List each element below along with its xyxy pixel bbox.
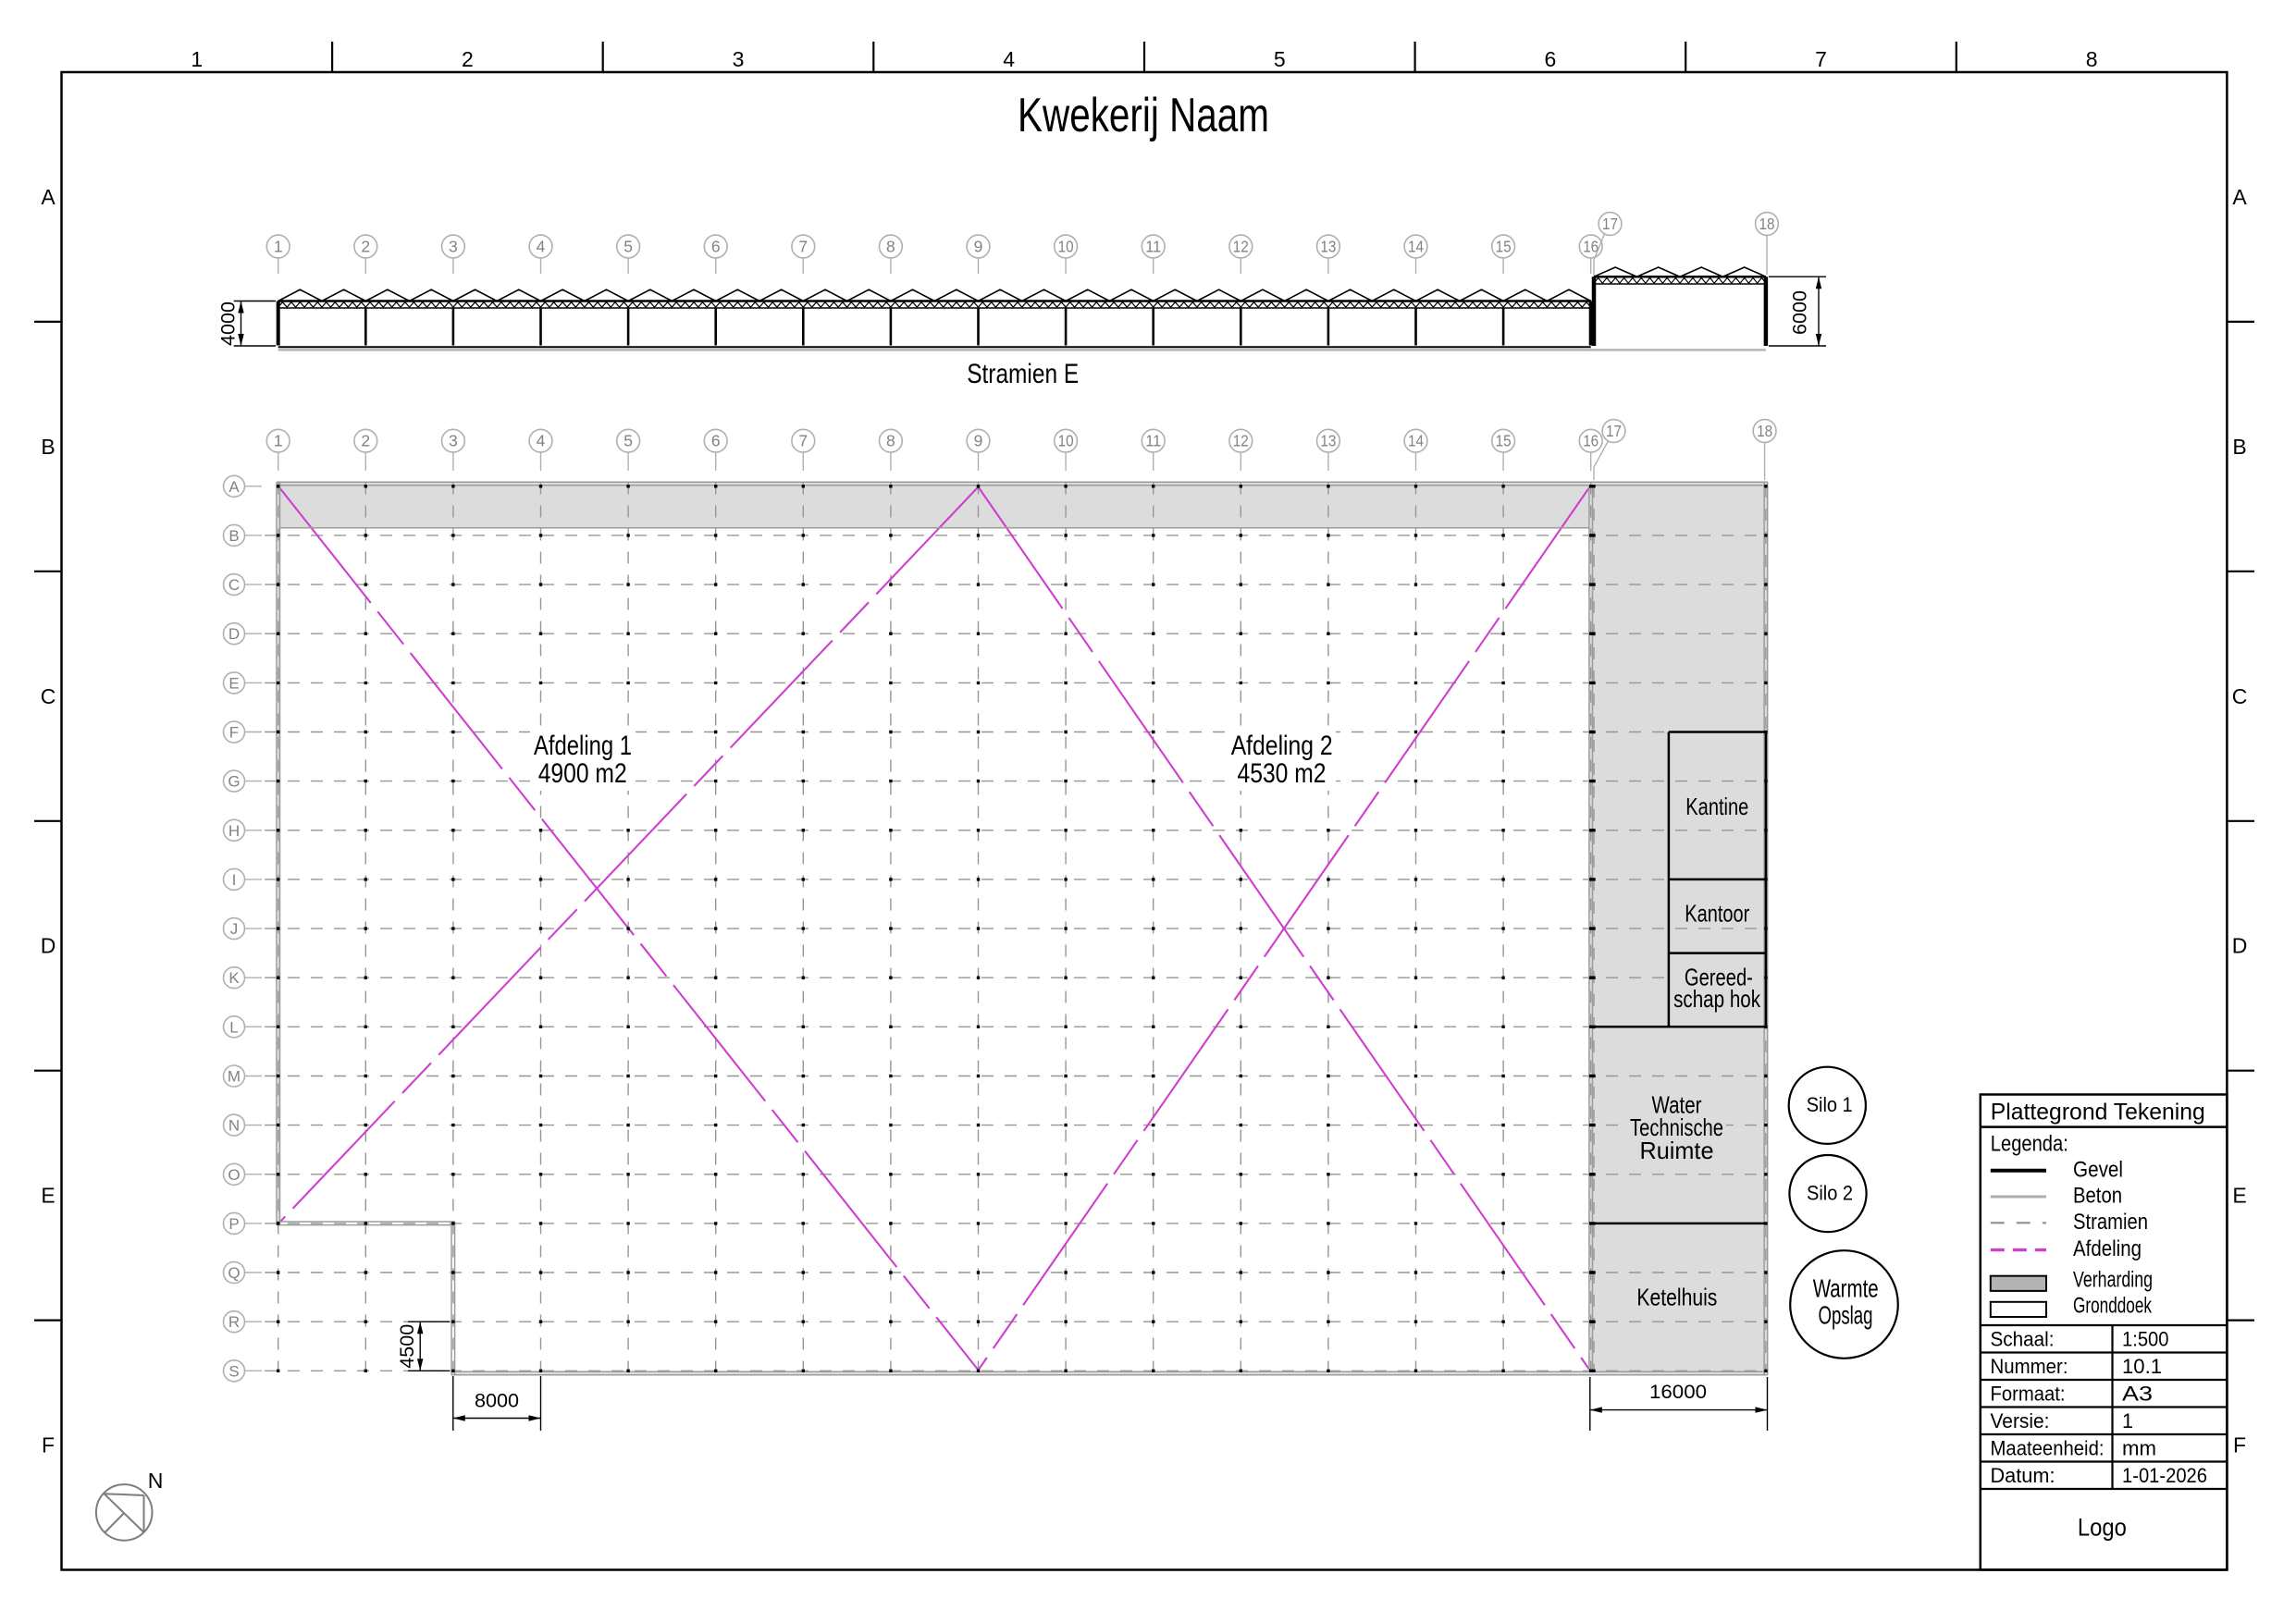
svg-text:4530 m2: 4530 m2 <box>1238 758 1327 789</box>
svg-text:Logo: Logo <box>2078 1514 2127 1542</box>
svg-text:3: 3 <box>733 47 745 71</box>
svg-text:E: E <box>2232 1184 2246 1208</box>
svg-text:Afdeling 1: Afdeling 1 <box>534 731 632 761</box>
svg-text:R: R <box>228 1313 240 1331</box>
svg-text:11: 11 <box>1145 238 1161 256</box>
svg-text:6: 6 <box>1545 47 1557 71</box>
svg-text:1: 1 <box>191 47 203 71</box>
svg-text:mm: mm <box>2122 1437 2156 1460</box>
svg-text:6000: 6000 <box>1789 290 1811 335</box>
svg-text:Stramien E: Stramien E <box>967 359 1079 389</box>
svg-text:Gronddoek: Gronddoek <box>2073 1294 2153 1319</box>
svg-text:3: 3 <box>449 432 458 450</box>
svg-text:I: I <box>232 871 237 889</box>
svg-text:4: 4 <box>1003 47 1015 71</box>
svg-text:3: 3 <box>449 238 458 256</box>
svg-text:9: 9 <box>974 432 983 450</box>
svg-text:N: N <box>148 1469 164 1493</box>
svg-text:Maateenheid:: Maateenheid: <box>1991 1437 2105 1460</box>
svg-text:schap hok: schap hok <box>1673 985 1761 1013</box>
svg-text:C: C <box>228 576 240 594</box>
svg-text:10: 10 <box>1058 432 1074 450</box>
svg-text:Kantoor: Kantoor <box>1685 900 1749 928</box>
svg-text:D: D <box>41 934 56 958</box>
svg-text:P: P <box>228 1215 239 1233</box>
svg-text:F: F <box>229 724 239 742</box>
svg-text:Beton: Beton <box>2073 1184 2122 1209</box>
svg-text:Silo 2: Silo 2 <box>1807 1182 1853 1205</box>
svg-text:6: 6 <box>711 432 721 450</box>
svg-text:15: 15 <box>1496 238 1512 256</box>
svg-text:O: O <box>228 1166 240 1184</box>
svg-text:Schaal:: Schaal: <box>1991 1328 2055 1351</box>
svg-text:B: B <box>41 435 55 459</box>
svg-text:Datum:: Datum: <box>1991 1464 2055 1487</box>
svg-text:K: K <box>228 969 240 987</box>
svg-text:B: B <box>2232 435 2246 459</box>
svg-text:A3: A3 <box>2122 1383 2153 1406</box>
svg-text:12: 12 <box>1233 432 1249 450</box>
svg-text:F: F <box>42 1433 55 1457</box>
svg-text:16000: 16000 <box>1649 1381 1707 1403</box>
svg-text:4500: 4500 <box>396 1324 418 1369</box>
svg-text:15: 15 <box>1496 432 1512 450</box>
svg-text:4000: 4000 <box>217 301 240 346</box>
svg-text:7: 7 <box>798 432 808 450</box>
svg-text:14: 14 <box>1408 432 1424 450</box>
svg-text:12: 12 <box>1233 238 1249 256</box>
svg-text:7: 7 <box>1815 47 1827 71</box>
svg-text:13: 13 <box>1320 238 1336 256</box>
svg-text:2: 2 <box>361 432 370 450</box>
svg-text:Stramien: Stramien <box>2073 1210 2148 1235</box>
svg-text:1: 1 <box>274 432 283 450</box>
svg-text:4: 4 <box>537 432 546 450</box>
svg-text:L: L <box>229 1018 238 1036</box>
svg-text:8: 8 <box>2086 47 2098 71</box>
svg-text:C: C <box>2232 684 2248 708</box>
svg-text:S: S <box>228 1362 239 1380</box>
svg-text:2: 2 <box>361 238 370 256</box>
svg-text:Formaat:: Formaat: <box>1991 1383 2066 1406</box>
svg-text:7: 7 <box>798 238 808 256</box>
svg-text:2: 2 <box>462 47 474 71</box>
svg-text:4: 4 <box>537 238 546 256</box>
svg-text:1:500: 1:500 <box>2122 1328 2169 1351</box>
svg-text:9: 9 <box>974 238 983 256</box>
svg-text:Legenda:: Legenda: <box>1991 1132 2068 1157</box>
svg-text:17: 17 <box>1602 215 1618 233</box>
svg-text:Gevel: Gevel <box>2073 1158 2123 1183</box>
svg-text:5: 5 <box>1274 47 1286 71</box>
svg-text:J: J <box>230 920 239 938</box>
svg-text:G: G <box>228 773 240 791</box>
svg-text:F: F <box>2233 1433 2246 1457</box>
svg-text:Ruimte: Ruimte <box>1640 1137 1714 1164</box>
svg-text:4900 m2: 4900 m2 <box>538 758 627 789</box>
svg-text:E: E <box>41 1184 55 1208</box>
svg-text:B: B <box>228 527 239 545</box>
svg-text:8: 8 <box>886 432 895 450</box>
svg-text:8000: 8000 <box>475 1390 519 1412</box>
svg-text:18: 18 <box>1759 215 1775 233</box>
svg-text:Warmte: Warmte <box>1813 1273 1879 1302</box>
svg-text:N: N <box>228 1117 240 1135</box>
svg-text:13: 13 <box>1320 432 1336 450</box>
svg-text:1-01-2026: 1-01-2026 <box>2122 1464 2207 1487</box>
svg-text:Nummer:: Nummer: <box>1991 1355 2068 1378</box>
svg-text:Q: Q <box>228 1264 240 1282</box>
svg-text:Afdeling 2: Afdeling 2 <box>1231 731 1333 761</box>
svg-text:10: 10 <box>1058 238 1074 256</box>
svg-text:Kwekerij Naam: Kwekerij Naam <box>1018 89 1269 142</box>
svg-text:Afdeling: Afdeling <box>2073 1236 2142 1261</box>
svg-text:5: 5 <box>623 238 633 256</box>
svg-text:11: 11 <box>1145 432 1161 450</box>
svg-text:D: D <box>228 625 240 643</box>
svg-text:Opslag: Opslag <box>1819 1301 1873 1330</box>
svg-text:Verharding: Verharding <box>2073 1268 2153 1293</box>
svg-text:Plattegrond Tekening: Plattegrond Tekening <box>1991 1100 2205 1125</box>
svg-text:Versie:: Versie: <box>1991 1409 2050 1432</box>
svg-text:16: 16 <box>1583 432 1599 450</box>
svg-text:1: 1 <box>2122 1409 2133 1432</box>
svg-text:H: H <box>228 822 240 840</box>
svg-text:A: A <box>228 478 240 496</box>
svg-text:Kantine: Kantine <box>1685 793 1748 820</box>
svg-text:C: C <box>41 684 56 708</box>
svg-text:M: M <box>228 1068 241 1086</box>
svg-text:Silo 1: Silo 1 <box>1807 1093 1853 1116</box>
svg-text:18: 18 <box>1757 422 1772 440</box>
svg-text:Ketelhuis: Ketelhuis <box>1636 1284 1717 1311</box>
svg-text:D: D <box>2232 934 2248 958</box>
svg-text:8: 8 <box>886 238 895 256</box>
svg-text:E: E <box>228 674 239 692</box>
svg-text:A: A <box>2232 185 2247 209</box>
svg-text:17: 17 <box>1606 422 1622 440</box>
svg-text:10.1: 10.1 <box>2122 1355 2162 1378</box>
svg-text:1: 1 <box>274 238 283 256</box>
svg-text:A: A <box>41 185 56 209</box>
svg-text:6: 6 <box>711 238 721 256</box>
svg-text:5: 5 <box>623 432 633 450</box>
svg-text:14: 14 <box>1408 238 1424 256</box>
